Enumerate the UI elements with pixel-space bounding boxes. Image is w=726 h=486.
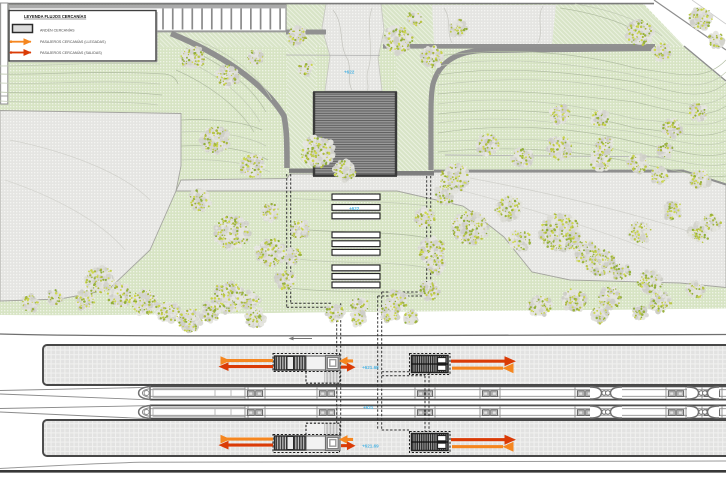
- svg-text:+622: +622: [344, 70, 355, 75]
- svg-text:+621.68: +621.68: [362, 365, 379, 370]
- svg-text:+621: +621: [363, 405, 374, 410]
- svg-text:+622: +622: [349, 206, 360, 211]
- svg-text:+621.69: +621.69: [362, 444, 379, 449]
